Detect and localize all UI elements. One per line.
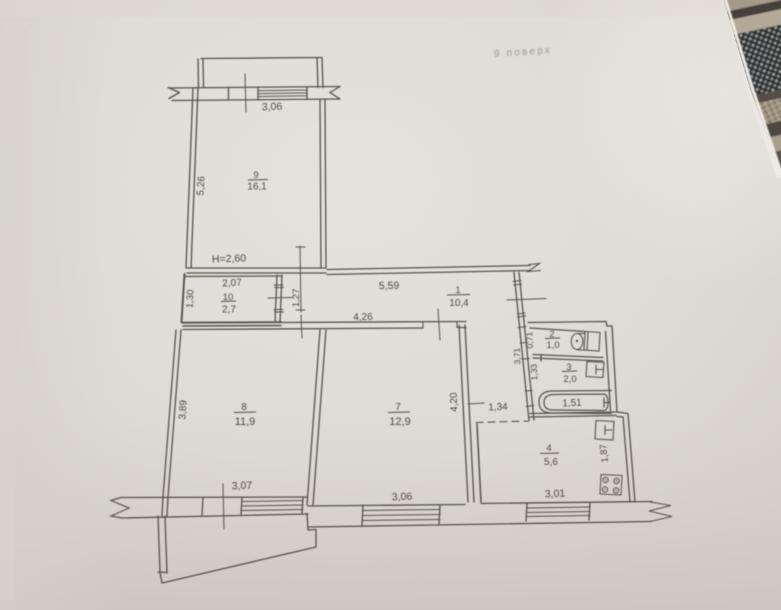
svg-text:3: 3 xyxy=(566,362,571,372)
svg-text:16,1: 16,1 xyxy=(247,182,267,193)
svg-text:2: 2 xyxy=(549,329,554,339)
svg-text:3,06: 3,06 xyxy=(392,491,413,504)
svg-text:3,89: 3,89 xyxy=(177,399,189,420)
svg-text:5,26: 5,26 xyxy=(195,175,207,196)
svg-text:4,26: 4,26 xyxy=(353,312,373,324)
svg-text:0,71: 0,71 xyxy=(524,331,535,348)
svg-text:H=2,60: H=2,60 xyxy=(212,252,247,265)
svg-text:1,0: 1,0 xyxy=(546,340,559,351)
svg-text:2,07: 2,07 xyxy=(222,277,242,289)
svg-text:12,9: 12,9 xyxy=(389,416,410,428)
svg-text:3,01: 3,01 xyxy=(544,487,565,500)
svg-text:2,7: 2,7 xyxy=(222,305,236,316)
svg-text:3,06: 3,06 xyxy=(262,101,283,114)
svg-text:1,33: 1,33 xyxy=(529,363,540,380)
svg-text:5,59: 5,59 xyxy=(379,280,400,293)
svg-text:4: 4 xyxy=(546,443,551,454)
svg-text:2,0: 2,0 xyxy=(563,374,576,385)
svg-text:10,4: 10,4 xyxy=(449,298,469,309)
svg-text:1,87: 1,87 xyxy=(598,443,611,463)
svg-text:7: 7 xyxy=(395,402,401,413)
svg-text:1,51: 1,51 xyxy=(562,398,582,410)
svg-text:11,9: 11,9 xyxy=(235,416,256,428)
svg-text:4,20: 4,20 xyxy=(449,392,461,412)
svg-text:5,6: 5,6 xyxy=(544,457,558,468)
svg-text:1,34: 1,34 xyxy=(488,402,508,414)
svg-text:1,27: 1,27 xyxy=(291,289,302,308)
svg-text:1,30: 1,30 xyxy=(185,289,197,308)
svg-text:3,71: 3,71 xyxy=(512,347,523,364)
svg-text:8: 8 xyxy=(241,402,247,413)
svg-text:3,07: 3,07 xyxy=(232,480,253,493)
